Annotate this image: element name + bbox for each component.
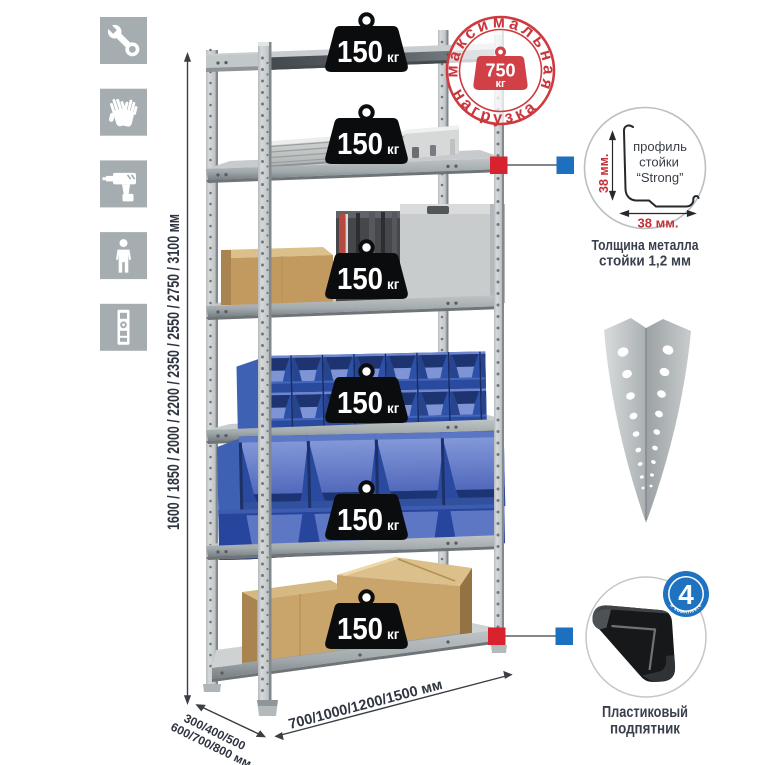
svg-text:700/1000/1200/1500 мм: 700/1000/1200/1500 мм <box>287 677 444 733</box>
svg-text:подпятник: подпятник <box>610 721 680 738</box>
svg-text:Пластиковый: Пластиковый <box>602 704 688 721</box>
svg-text:150: 150 <box>337 34 383 69</box>
svg-text:38 мм.: 38 мм. <box>638 216 679 231</box>
svg-text:1600 / 1850 / 2000 / 2200 / 23: 1600 / 1850 / 2000 / 2200 / 2350 / 2550 … <box>165 214 183 530</box>
svg-text:38 мм.: 38 мм. <box>597 154 611 193</box>
svg-text:стойки 1,2 мм: стойки 1,2 мм <box>599 253 691 270</box>
svg-text:4: 4 <box>678 579 694 610</box>
svg-text:кг: кг <box>495 78 506 90</box>
svg-text:кг: кг <box>387 50 400 65</box>
svg-text:профиль: профиль <box>633 139 687 154</box>
svg-text:стойки: стойки <box>639 155 679 170</box>
svg-text:“Strong”: “Strong” <box>637 170 684 185</box>
svg-text:Толщина металла: Толщина металла <box>592 237 700 254</box>
